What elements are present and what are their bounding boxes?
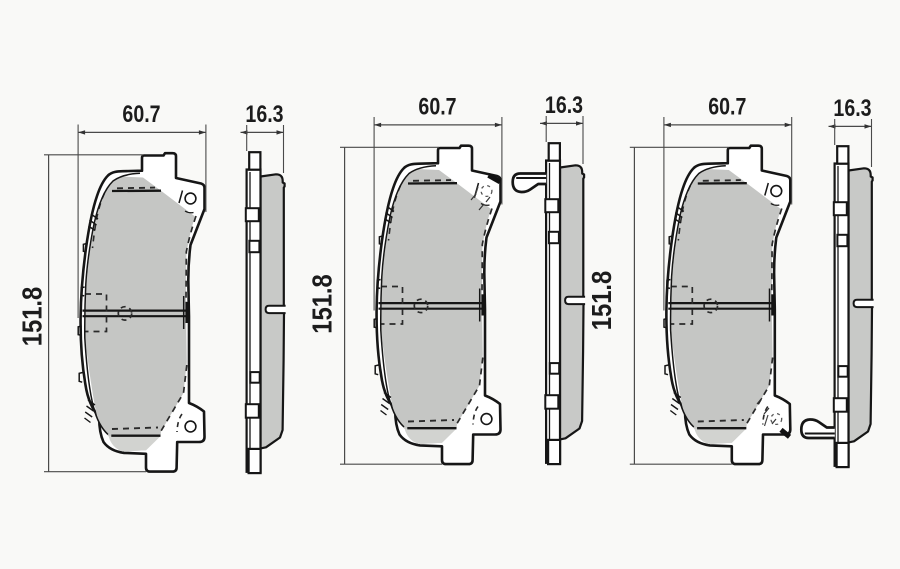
svg-text:151.8: 151.8 [585,271,617,331]
svg-text:151.8: 151.8 [16,287,48,347]
svg-text:151.8: 151.8 [306,274,338,334]
